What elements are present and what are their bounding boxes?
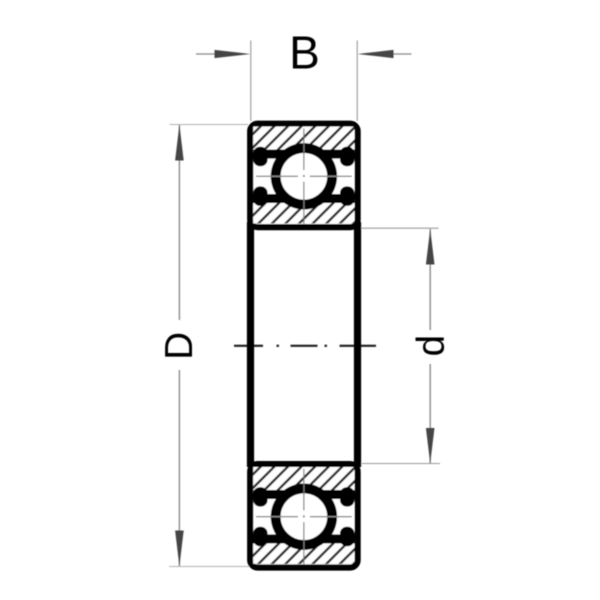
svg-text:d: d bbox=[410, 335, 453, 356]
svg-text:D: D bbox=[158, 332, 201, 360]
svg-text:B: B bbox=[289, 27, 320, 79]
